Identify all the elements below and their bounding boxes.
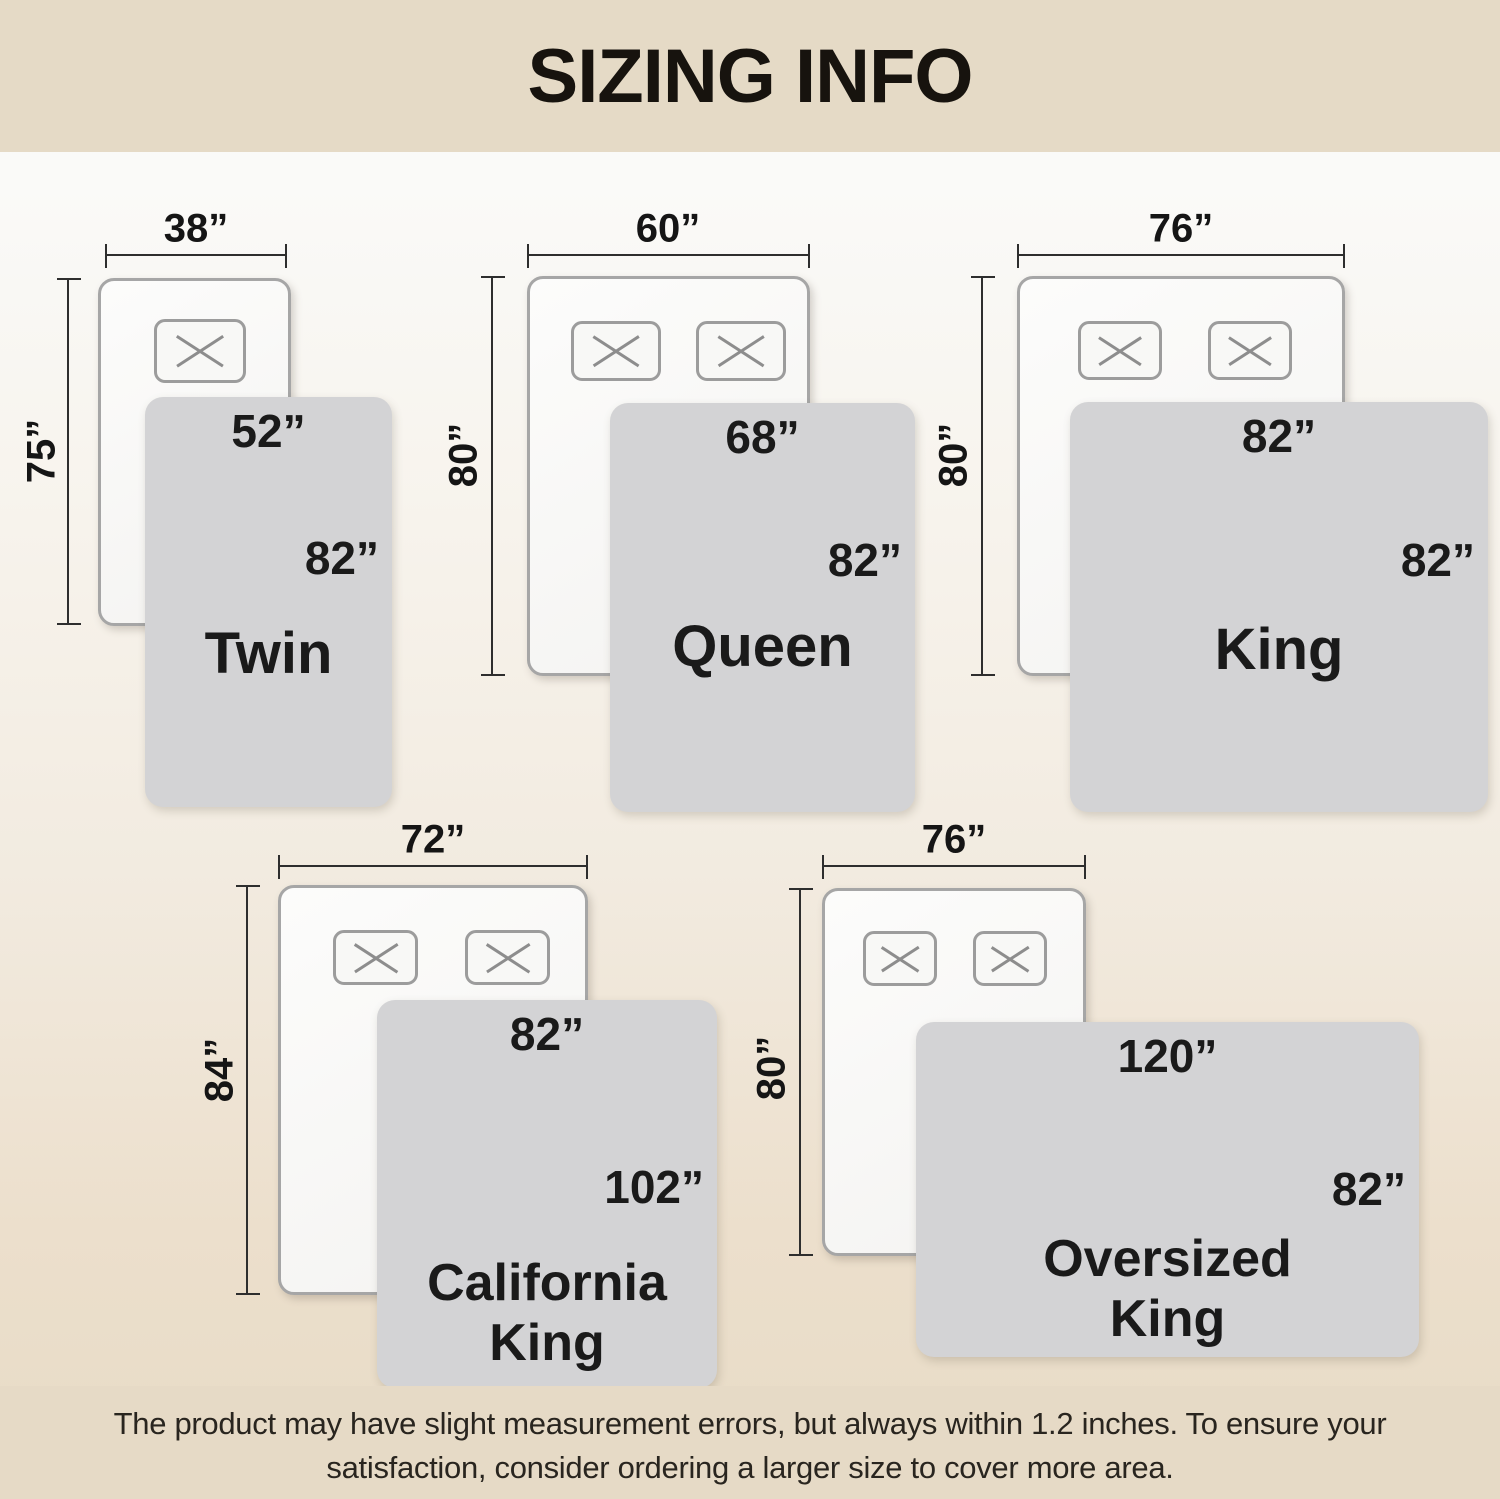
blanket-width-label: 82” [510,1007,584,1061]
footer-disclaimer-line-1: The product may have slight measurement … [0,1402,1500,1446]
bed-length-dimension-line [981,276,983,676]
bed-length-dimension-label: 80” [932,423,977,488]
blanket-length-label: 82” [1401,533,1475,587]
blanket-queen: 68” 82” Queen [610,403,915,812]
blanket-length-label: 102” [604,1160,704,1214]
bed-length-dimension-label: 80” [442,423,487,488]
bed-length-dimension-label: 80” [750,1036,795,1101]
bed-width-dimension-line [822,865,1086,867]
pillow-icon [973,931,1047,986]
blanket-width-label: 120” [1118,1029,1218,1083]
pillow-icon [465,930,550,985]
footer-disclaimer-line-2: satisfaction, consider ordering a larger… [0,1446,1500,1490]
bed-length-dimension-line [67,278,69,625]
blanket-california-king: 82” 102” CaliforniaKing [377,1000,717,1388]
pillow-icon [863,931,937,986]
footer-band: The product may have slight measurement … [0,1386,1500,1499]
bed-length-dimension-line [799,888,801,1256]
blanket-width-label: 52” [231,404,305,458]
pillow-icon [154,319,246,383]
blanket-width-label: 68” [725,410,799,464]
bed-length-dimension-label: 75” [20,419,65,484]
blanket-king: 82” 82” King [1070,402,1488,812]
blanket-length-label: 82” [1332,1162,1406,1216]
size-name: King [1070,618,1488,683]
pillow-icon [333,930,418,985]
pillow-icon [571,321,661,381]
blanket-length-label: 82” [305,531,379,585]
bed-width-dimension-line [527,254,810,256]
blanket-length-label: 82” [828,533,902,587]
pillow-icon [1208,321,1292,380]
header-band: SIZING INFO [0,0,1500,152]
size-name: Twin [145,622,392,687]
bed-width-dimension-line [278,865,588,867]
bed-width-dimension-label: 72” [401,818,466,863]
bed-width-dimension-label: 60” [636,207,701,252]
bed-width-dimension-label: 76” [1149,207,1214,252]
blanket-oversized-king: 120” 82” OversizedKing [916,1022,1419,1357]
bed-width-dimension-line [1017,254,1345,256]
size-name: CaliforniaKing [377,1254,717,1374]
blanket-twin: 52” 82” Twin [145,397,392,807]
blanket-width-label: 82” [1242,409,1316,463]
size-name: OversizedKing [916,1230,1419,1350]
bed-width-dimension-label: 38” [164,207,229,252]
pillow-icon [696,321,786,381]
bed-length-dimension-line [246,885,248,1295]
bed-width-dimension-label: 76” [922,818,987,863]
bed-length-dimension-line [491,276,493,676]
bed-width-dimension-line [105,254,287,256]
page-title: SIZING INFO [528,33,973,120]
size-name: Queen [610,615,915,680]
pillow-icon [1078,321,1162,380]
bed-length-dimension-label: 84” [198,1038,243,1103]
